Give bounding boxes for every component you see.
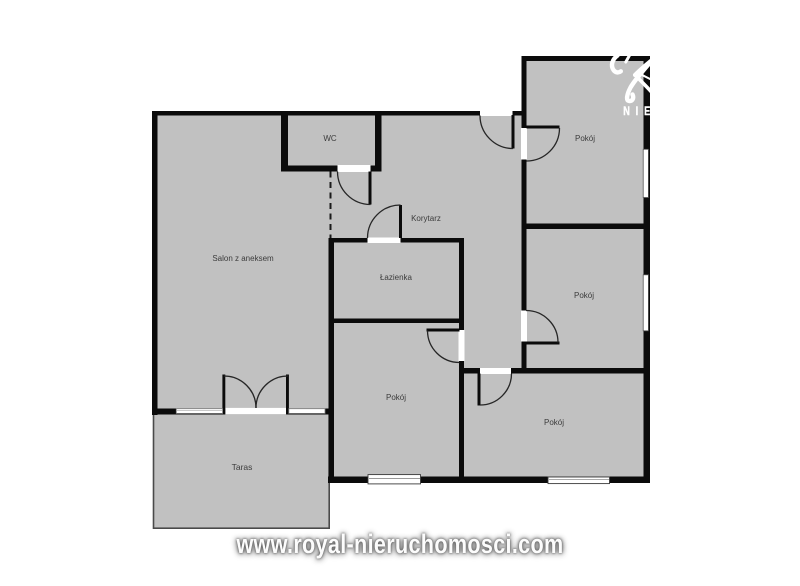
svg-text:Pokój: Pokój <box>386 393 406 402</box>
svg-text:Salon z aneksem: Salon z aneksem <box>212 254 274 263</box>
svg-text:Pokój: Pokój <box>574 291 594 300</box>
svg-text:WC: WC <box>323 134 337 143</box>
svg-text:Łazienka: Łazienka <box>380 273 413 282</box>
svg-text:Korytarz: Korytarz <box>411 214 441 223</box>
svg-text:Taras: Taras <box>232 462 253 472</box>
svg-text:Pokój: Pokój <box>544 418 564 427</box>
svg-text:Pokój: Pokój <box>575 134 595 143</box>
svg-text:NIERUCHOMOŚCI: NIERUCHOMOŚCI <box>623 104 778 118</box>
